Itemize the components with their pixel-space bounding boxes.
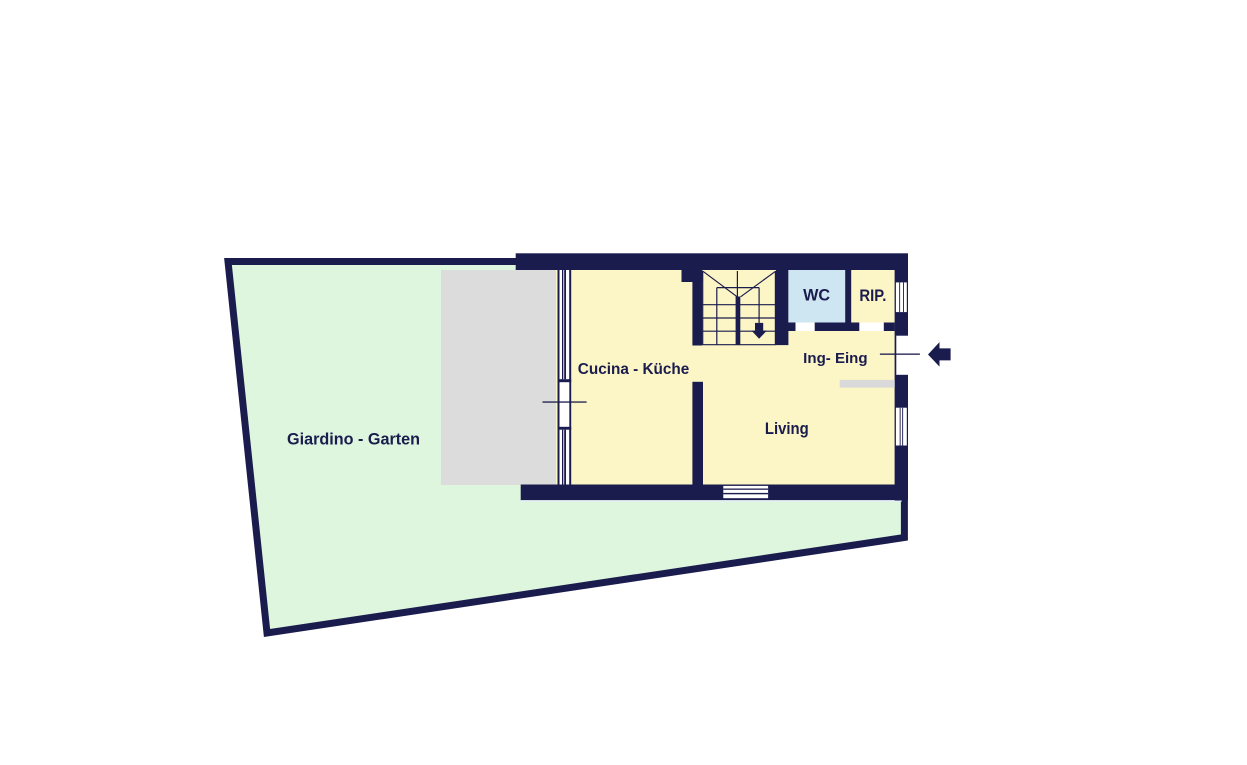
svg-text:Living: Living [765,420,809,438]
svg-text:Cucina - Küche: Cucina - Küche [578,361,690,378]
svg-text:Ing- Eing: Ing- Eing [803,351,867,367]
svg-text:RIP.: RIP. [859,286,886,305]
svg-text:Giardino - Garten: Giardino - Garten [287,430,420,449]
svg-text:WC: WC [803,285,830,304]
